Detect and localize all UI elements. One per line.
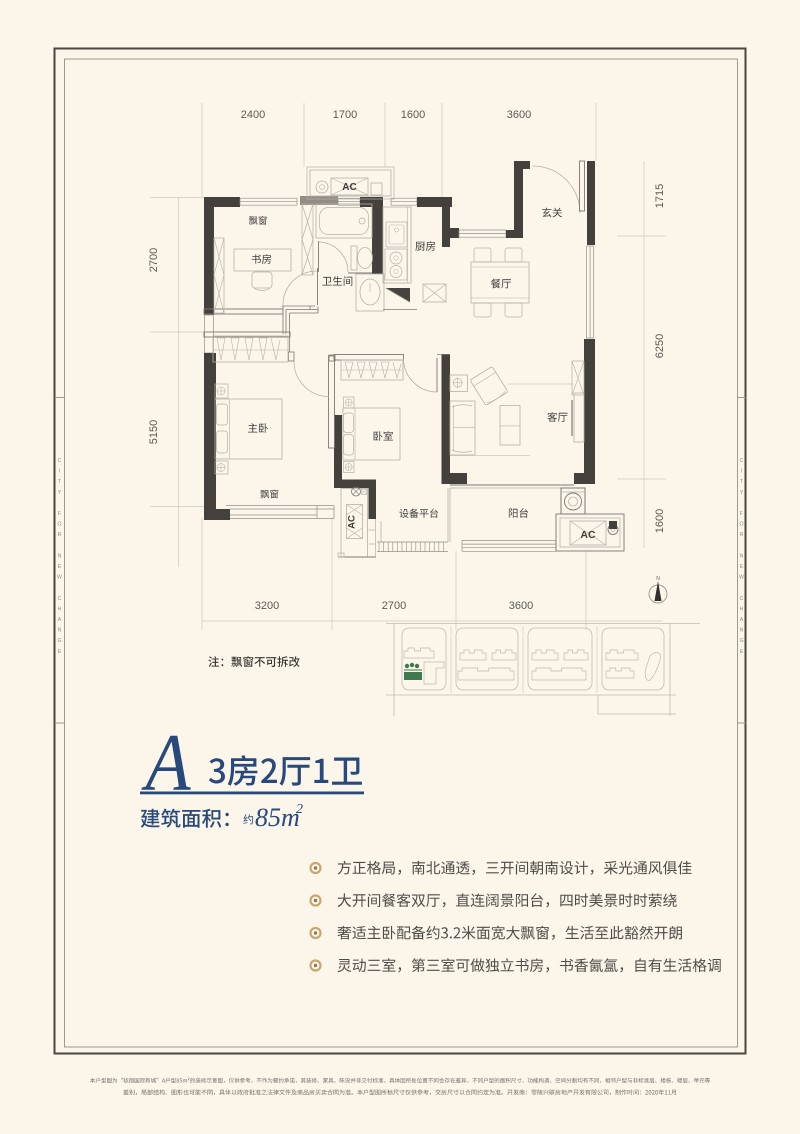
svg-text:C: C: [58, 596, 62, 602]
svg-text:Y: Y: [740, 490, 744, 496]
svg-text:W: W: [739, 575, 744, 581]
svg-text:AC: AC: [347, 515, 358, 529]
svg-text:N: N: [58, 553, 62, 559]
svg-text:G: G: [57, 638, 61, 644]
svg-text:R: R: [58, 532, 62, 538]
svg-text:R: R: [740, 532, 744, 538]
svg-text:G: G: [739, 638, 743, 644]
svg-text:3600: 3600: [509, 600, 533, 612]
svg-text:AC: AC: [580, 529, 596, 541]
svg-text:O: O: [739, 522, 743, 528]
svg-text:A: A: [740, 617, 744, 623]
svg-text:H: H: [58, 606, 62, 612]
svg-text:F: F: [740, 511, 743, 517]
svg-text:5150: 5150: [148, 420, 160, 444]
svg-text:E: E: [58, 564, 62, 570]
svg-text:N: N: [740, 553, 744, 559]
svg-text:H: H: [740, 606, 744, 612]
svg-text:Y: Y: [58, 490, 62, 496]
svg-text:I: I: [59, 469, 60, 475]
svg-text:E: E: [58, 649, 62, 655]
svg-text:C: C: [58, 458, 62, 464]
svg-text:6250: 6250: [654, 334, 666, 358]
svg-text:C: C: [740, 458, 744, 464]
svg-text:3600: 3600: [507, 109, 531, 121]
svg-text:I: I: [741, 469, 742, 475]
svg-text:AC: AC: [342, 182, 356, 193]
svg-text:W: W: [57, 575, 62, 581]
svg-text:3200: 3200: [255, 600, 279, 612]
svg-text:1600: 1600: [401, 109, 425, 121]
svg-text:2: 2: [296, 802, 303, 817]
svg-text:E: E: [740, 649, 744, 655]
svg-text:N: N: [656, 576, 660, 582]
svg-text:C: C: [740, 596, 744, 602]
svg-text:2700: 2700: [382, 600, 406, 612]
svg-text:T: T: [58, 479, 62, 485]
svg-text:F: F: [58, 511, 61, 517]
svg-text:O: O: [57, 522, 61, 528]
svg-text:1600: 1600: [654, 509, 666, 533]
svg-text:N: N: [740, 628, 744, 634]
svg-text:T: T: [740, 479, 744, 485]
svg-text:E: E: [740, 564, 744, 570]
svg-text:1700: 1700: [333, 109, 357, 121]
svg-text:2400: 2400: [241, 109, 265, 121]
svg-text:85m: 85m: [255, 803, 300, 832]
svg-text:1715: 1715: [654, 184, 666, 208]
svg-text:2700: 2700: [148, 248, 160, 272]
svg-text:N: N: [58, 628, 62, 634]
svg-text:A: A: [58, 617, 62, 623]
